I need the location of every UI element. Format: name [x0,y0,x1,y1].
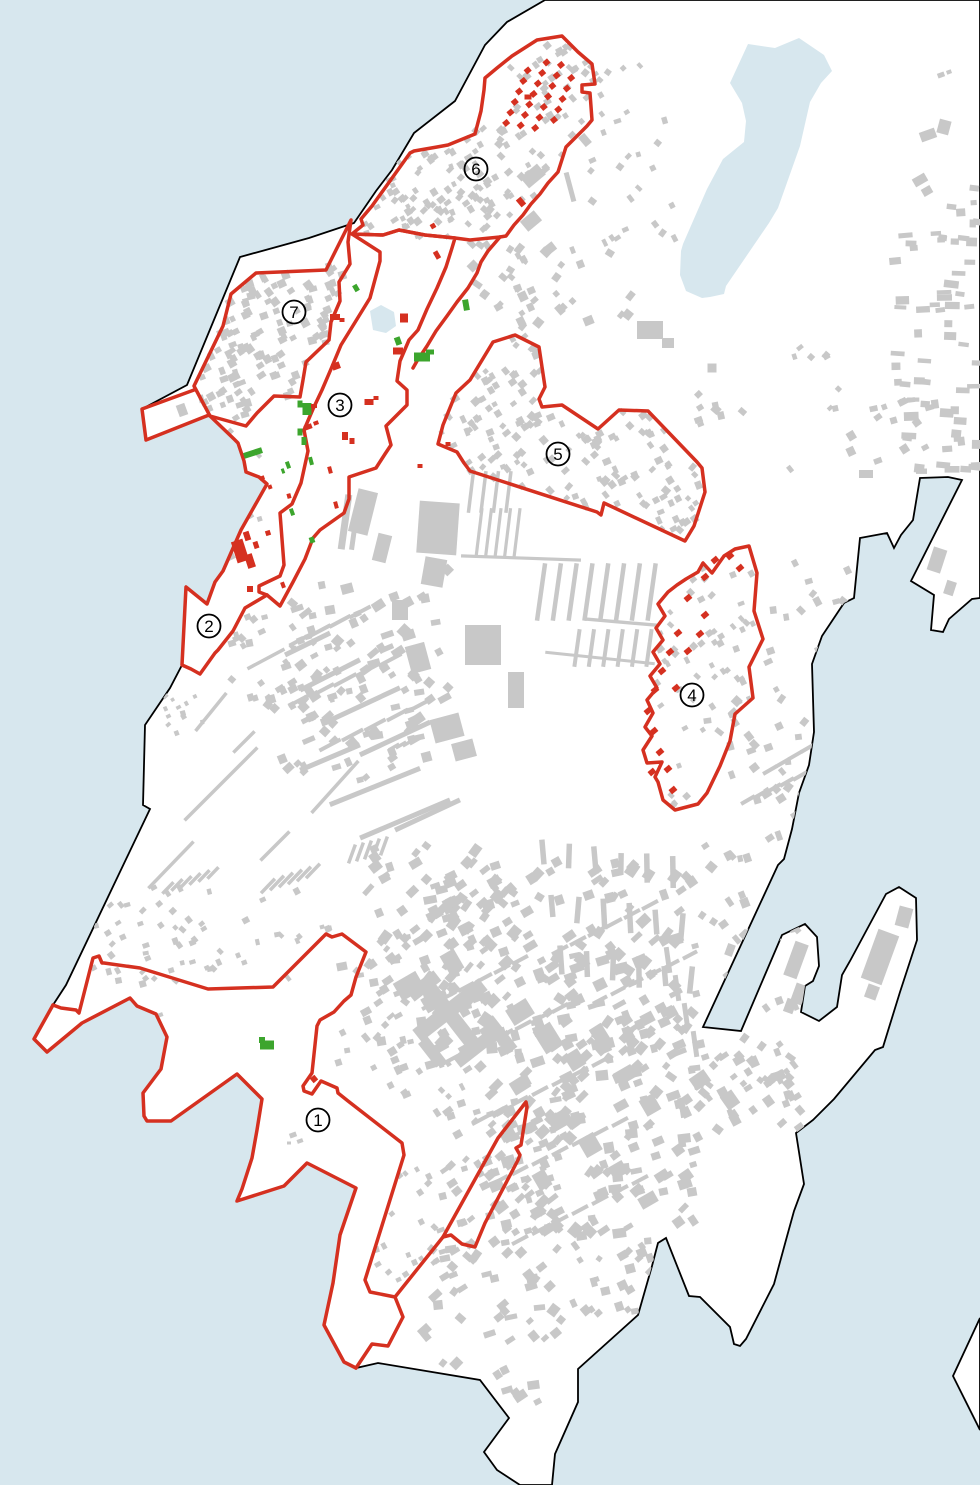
svg-text:4: 4 [687,686,696,705]
svg-text:6: 6 [471,160,480,179]
svg-text:3: 3 [335,396,344,415]
svg-text:7: 7 [289,303,298,322]
svg-text:1: 1 [313,1111,322,1130]
svg-text:2: 2 [204,617,213,636]
svg-text:5: 5 [553,445,562,464]
